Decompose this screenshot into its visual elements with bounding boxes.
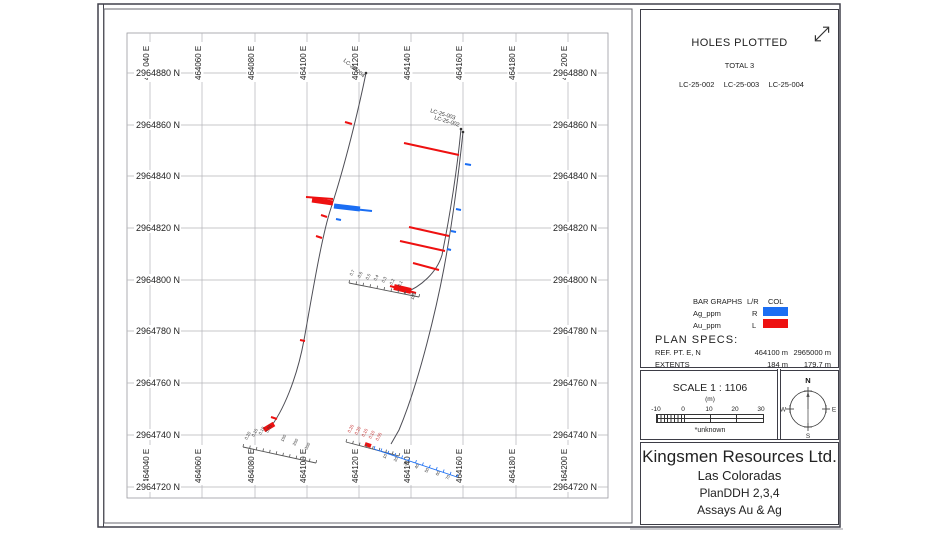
assay-bar [451, 231, 456, 232]
hole-name: LC-25-004 [769, 80, 804, 89]
scale-tick: -10 [646, 406, 666, 413]
northing-label: 2964840 N [136, 171, 180, 181]
scale-tick: 10 [699, 406, 719, 413]
drawing-title: PlanDDH 2,3,4 [641, 486, 838, 500]
compass-e: E [832, 407, 837, 414]
refpt-easting: 464100 m [755, 348, 788, 357]
plan-specs-title: PLAN SPECS: [655, 334, 738, 346]
drawing-subtitle: Assays Au & Ag [641, 503, 838, 517]
assay-bar [447, 249, 451, 250]
holes-plotted-list: LC-25-002 LC-25-003 LC-25-004 [641, 80, 838, 89]
easting-label: 464040 E [142, 449, 151, 483]
scale-bar-division [710, 415, 711, 422]
northing-label: 2964720 N [136, 482, 180, 492]
scale-tick: 30 [751, 406, 771, 413]
northing-label: 2964880 N [553, 68, 597, 78]
info-panel: HOLES PLOTTED TOTAL 3 LC-25-002 LC-25-00… [640, 9, 839, 525]
northing-label: 2964780 N [553, 326, 597, 336]
drawing-sheet: 464040 E464040 E464060 E464060 E464080 E… [0, 0, 937, 535]
assay-bar [465, 164, 471, 165]
compass-n: N [805, 376, 810, 385]
easting-label: 464100 E [299, 449, 308, 483]
scale-unit: (m) [641, 396, 779, 403]
northing-label: 2964800 N [136, 275, 180, 285]
assay-bar [300, 340, 305, 341]
collar-marker [460, 128, 463, 131]
easting-label: 464080 E [247, 46, 256, 80]
company-title: Kingsmen Resources Ltd. [641, 447, 838, 467]
easting-label: 464140 E [403, 46, 412, 80]
assay-bar [312, 200, 333, 203]
assay-bar [456, 209, 461, 210]
refpt-label: REF. PT. E, N [655, 348, 701, 357]
scale-tick: 20 [725, 406, 745, 413]
legend-ag-side: R [752, 309, 757, 318]
easting-label: 464100 E [299, 46, 308, 80]
northing-label: 2964760 N [553, 378, 597, 388]
easting-label: 464200 E [560, 449, 569, 483]
easting-label: 464080 E [247, 449, 256, 483]
scale-tick: 0 [673, 406, 693, 413]
refpt-northing: 2965000 m [793, 348, 831, 357]
scale-bar-division [684, 415, 685, 422]
easting-label: 464120 E [351, 449, 360, 483]
legend-au-label: Au_ppm [693, 321, 721, 330]
collar-marker [462, 131, 465, 134]
northing-label: 2964760 N [136, 378, 180, 388]
easting-label: 464160 E [455, 449, 464, 483]
holes-plotted-title: HOLES PLOTTED [641, 37, 838, 49]
northing-label: 2964740 N [136, 430, 180, 440]
northing-label: 2964840 N [553, 171, 597, 181]
scale-bar [656, 414, 764, 423]
easting-label: 464060 E [194, 449, 203, 483]
project-title: Las Coloradas [641, 468, 838, 483]
northing-label: 2964720 N [553, 482, 597, 492]
easting-label: 464160 E [455, 46, 464, 80]
legend-au-swatch [763, 319, 788, 328]
easting-label: 464060 E [194, 46, 203, 80]
hole-name: LC-25-003 [724, 80, 759, 89]
northing-label: 2964820 N [136, 223, 180, 233]
compass-w: W [780, 407, 787, 414]
legend-header-col: COL [768, 297, 783, 306]
scale-title: SCALE 1 : 1106 [641, 382, 779, 394]
northing-label: 2964880 N [136, 68, 180, 78]
scale-bar-division [736, 415, 737, 422]
compass: N S W E [780, 371, 838, 439]
legend-header-bargraphs: BAR GRAPHS [693, 297, 742, 306]
panel-divider [640, 439, 839, 443]
northing-label: 2964860 N [136, 120, 180, 130]
assay-bar [336, 219, 341, 220]
scale-note: *unknown [641, 427, 779, 434]
easting-label: 464180 E [508, 46, 517, 80]
northing-label: 2964820 N [553, 223, 597, 233]
legend-au-side: L [752, 321, 756, 330]
hole-name: LC-25-002 [679, 80, 714, 89]
assay-bar [334, 206, 360, 209]
legend-header-lr: L/R [747, 297, 759, 306]
northing-label: 2964740 N [553, 430, 597, 440]
northing-label: 2964800 N [553, 275, 597, 285]
easting-label: 464180 E [508, 449, 517, 483]
legend-ag-swatch [763, 307, 788, 316]
holes-plotted-total: TOTAL 3 [641, 61, 838, 70]
legend-ag-label: Ag_ppm [693, 309, 721, 318]
northing-label: 2964860 N [553, 120, 597, 130]
northing-label: 2964780 N [136, 326, 180, 336]
